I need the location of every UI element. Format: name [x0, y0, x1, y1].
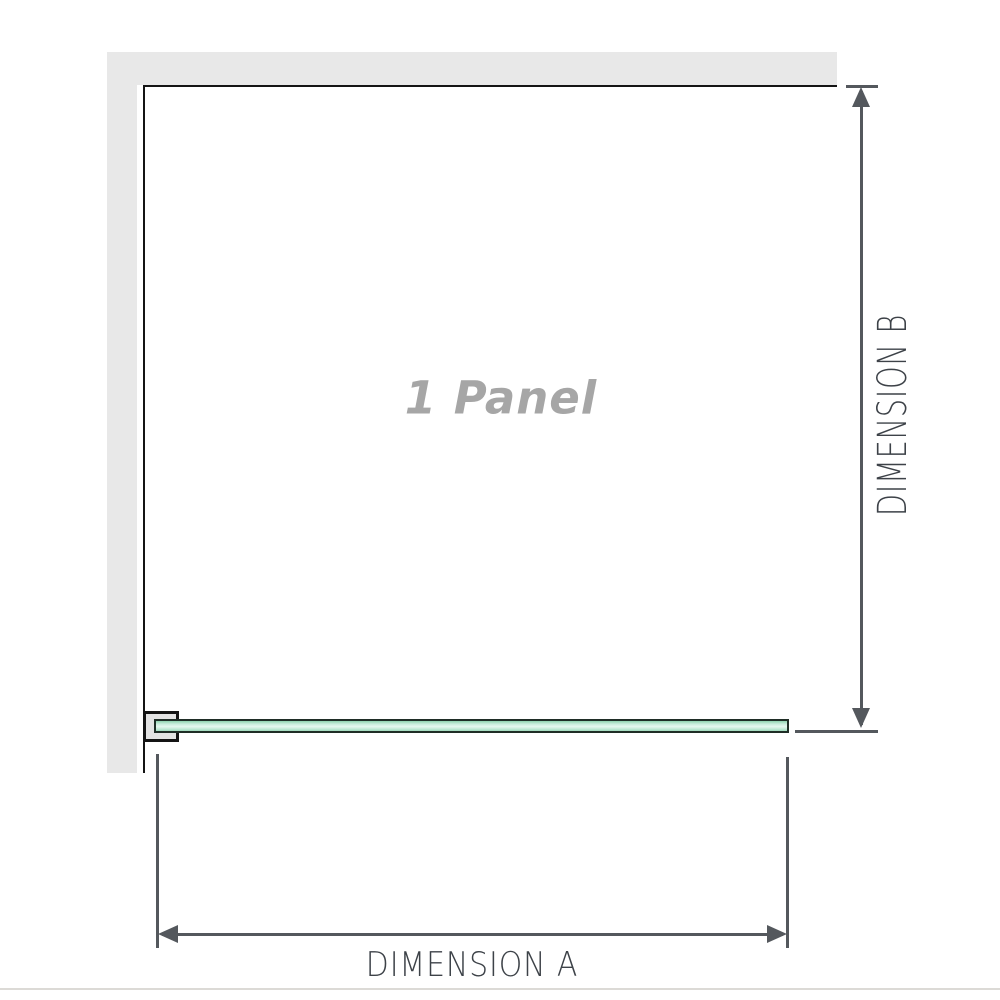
shower-panel-diagram: 1 Panel DIMENSION B DIMENSION A — [0, 0, 1000, 1000]
dimension-b-label: DIMENSION B — [870, 314, 916, 516]
dimension-b-arrow-up-icon — [852, 87, 870, 107]
dimension-a-arrow-left-icon — [158, 925, 178, 943]
dimension-a-line — [162, 933, 783, 936]
glass-panel — [154, 719, 789, 733]
panel-frame-top-edge — [143, 85, 837, 87]
dimension-a-label: DIMENSION A — [366, 945, 578, 985]
dimension-a-arrow-right-icon — [767, 925, 787, 943]
dimension-b-line — [860, 91, 863, 725]
dimension-b-arrow-down-icon — [852, 708, 870, 728]
panel-frame-left-edge — [143, 85, 145, 773]
dimension-b-tick-bottom — [795, 730, 878, 733]
dimension-a-extension-right — [786, 757, 789, 948]
wall-left — [107, 52, 137, 773]
dimension-a-extension-left — [156, 754, 159, 948]
panel-count-label: 1 Panel — [405, 372, 597, 425]
wall-top — [107, 52, 837, 85]
image-bottom-border — [0, 988, 1000, 990]
